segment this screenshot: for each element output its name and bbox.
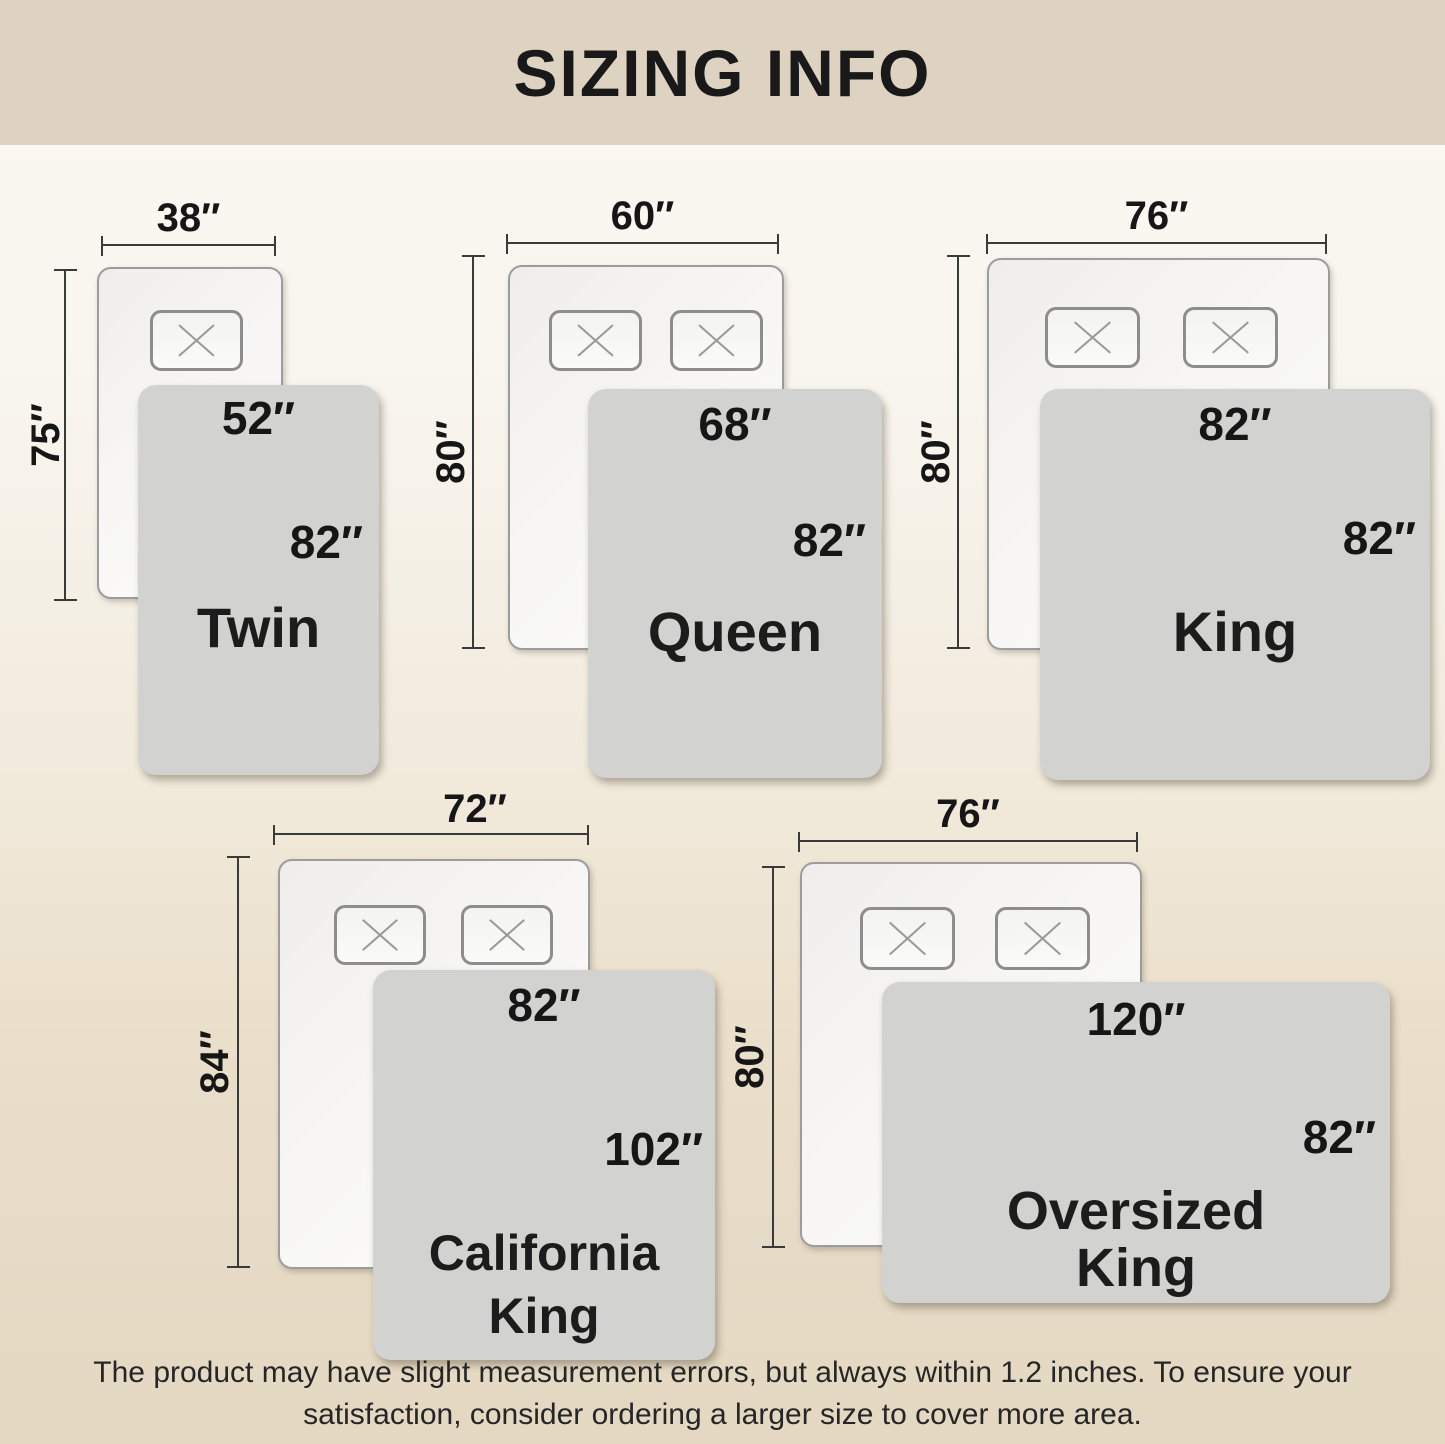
pillow bbox=[1183, 307, 1278, 368]
size-name: King bbox=[1040, 600, 1430, 664]
pillow bbox=[1045, 307, 1140, 368]
tick-right bbox=[1136, 832, 1138, 852]
tick-top bbox=[462, 255, 485, 257]
pillow bbox=[995, 907, 1090, 970]
width-dimension-line bbox=[102, 244, 275, 246]
tick-bottom bbox=[762, 1246, 785, 1248]
tick-bottom bbox=[947, 647, 970, 649]
mattress-width-label: 76″ bbox=[799, 792, 1137, 837]
pillow bbox=[461, 905, 553, 965]
blanket-width-label: 52″ bbox=[138, 391, 379, 445]
mattress-width-label: 72″ bbox=[318, 787, 632, 832]
mattress-length-label: 80″ bbox=[728, 1017, 774, 1097]
tick-top bbox=[227, 856, 250, 858]
width-dimension-line bbox=[274, 833, 588, 835]
blanket-width-label: 82″ bbox=[373, 978, 715, 1032]
mattress-length-label: 84″ bbox=[193, 1022, 239, 1102]
mattress-width-label: 38″ bbox=[102, 196, 275, 241]
blanket-shape: 52″ 82″ Twin bbox=[138, 385, 379, 775]
blanket-shape: 82″ 82″ King bbox=[1040, 389, 1430, 780]
tick-right bbox=[777, 234, 779, 254]
pillow bbox=[549, 310, 642, 371]
blanket-length-label: 82″ bbox=[290, 515, 363, 569]
tick-right bbox=[587, 825, 589, 845]
tick-left bbox=[798, 832, 800, 852]
pillow-x-icon bbox=[464, 908, 550, 962]
blanket-length-label: 82″ bbox=[1303, 1110, 1376, 1164]
blanket-length-label: 82″ bbox=[1343, 511, 1416, 565]
tick-right bbox=[1325, 234, 1327, 254]
tick-top bbox=[54, 269, 77, 271]
pillow-x-icon bbox=[1186, 310, 1275, 365]
tick-left bbox=[986, 234, 988, 254]
mattress-width-label: 60″ bbox=[507, 194, 778, 239]
header-band: SIZING INFO bbox=[0, 0, 1445, 145]
size-name: Oversized King bbox=[882, 1183, 1390, 1297]
size-name: Twin bbox=[138, 596, 379, 660]
pillow-x-icon bbox=[673, 313, 760, 368]
disclaimer-line-1: The product may have slight measurement … bbox=[0, 1352, 1445, 1394]
pillow-x-icon bbox=[863, 910, 952, 967]
blanket-width-label: 68″ bbox=[588, 397, 882, 451]
mattress-width-label: 76″ bbox=[987, 194, 1326, 239]
tick-bottom bbox=[227, 1266, 250, 1268]
pillow-x-icon bbox=[998, 910, 1087, 967]
page-title: SIZING INFO bbox=[514, 35, 932, 111]
length-dimension-line bbox=[64, 270, 66, 600]
tick-top bbox=[762, 866, 785, 868]
blanket-length-label: 82″ bbox=[793, 513, 866, 567]
tick-top bbox=[947, 255, 970, 257]
size-name: Queen bbox=[588, 600, 882, 664]
width-dimension-line bbox=[987, 242, 1326, 244]
tick-bottom bbox=[54, 599, 77, 601]
disclaimer-line-2: satisfaction, consider ordering a larger… bbox=[0, 1394, 1445, 1436]
tick-left bbox=[101, 236, 103, 256]
pillow-x-icon bbox=[337, 908, 423, 962]
tick-left bbox=[273, 825, 275, 845]
length-dimension-line bbox=[472, 256, 474, 648]
pillow bbox=[860, 907, 955, 970]
width-dimension-line bbox=[799, 840, 1137, 842]
pillow bbox=[334, 905, 426, 965]
size-name: California King bbox=[373, 1222, 715, 1348]
pillow-x-icon bbox=[153, 313, 240, 368]
width-dimension-line bbox=[507, 242, 778, 244]
length-dimension-line bbox=[957, 256, 959, 648]
pillow bbox=[670, 310, 763, 371]
mattress-length-label: 80″ bbox=[914, 412, 960, 492]
blanket-length-label: 102″ bbox=[604, 1122, 703, 1176]
pillow-x-icon bbox=[552, 313, 639, 368]
tick-bottom bbox=[462, 647, 485, 649]
pillow-x-icon bbox=[1048, 310, 1137, 365]
mattress-length-label: 80″ bbox=[429, 412, 475, 492]
pillow bbox=[150, 310, 243, 371]
disclaimer-text: The product may have slight measurement … bbox=[0, 1352, 1445, 1436]
length-dimension-line bbox=[772, 867, 774, 1247]
length-dimension-line bbox=[237, 857, 239, 1267]
blanket-shape: 68″ 82″ Queen bbox=[588, 389, 882, 778]
tick-left bbox=[506, 234, 508, 254]
tick-right bbox=[274, 236, 276, 256]
blanket-shape: 82″ 102″ California King bbox=[373, 970, 715, 1360]
blanket-width-label: 120″ bbox=[882, 992, 1390, 1046]
blanket-width-label: 82″ bbox=[1040, 397, 1430, 451]
blanket-shape: 120″ 82″ Oversized King bbox=[882, 982, 1390, 1303]
